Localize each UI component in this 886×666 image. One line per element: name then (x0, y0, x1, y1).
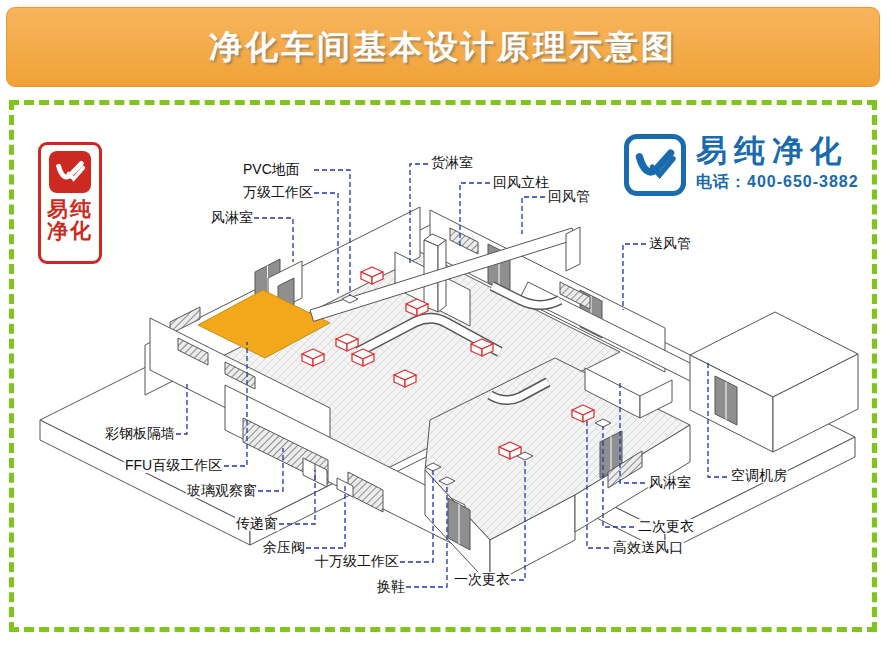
label-shoe-change: 换鞋 (376, 579, 406, 594)
label-return-air-column: 回风立柱 (492, 175, 550, 190)
page-title: 净化车间基本设计原理示意图 (209, 25, 677, 70)
label-first-changing: 一次更衣 (453, 572, 511, 587)
label-supply-air-duct: 送风管 (648, 236, 692, 251)
company-logo-block: 易纯净化 电话：400-650-3882 (624, 134, 859, 196)
label-air-shower-left: 风淋室 (210, 210, 254, 225)
label-ffu-class100-area: FFU百级工作区 (124, 458, 223, 473)
w-mark-icon (53, 155, 87, 189)
label-second-changing: 二次更衣 (637, 519, 695, 534)
title-banner: 净化车间基本设计原理示意图 (6, 7, 880, 87)
label-class100k-area: 十万级工作区 (314, 554, 400, 569)
seal-text-line1: 易纯 (47, 198, 93, 220)
red-seal-stamp: 易纯 净化 (38, 142, 102, 264)
company-name: 易纯净化 (696, 134, 859, 168)
label-hvac-room: 空调机房 (730, 468, 788, 483)
seal-logo-icon (49, 151, 91, 193)
company-logo-icon (624, 134, 686, 196)
label-steel-panel-wall: 彩钢板隔墙 (104, 426, 176, 441)
label-air-shower-right: 风淋室 (648, 475, 692, 490)
label-pressure-relief-valve: 余压阀 (262, 540, 306, 555)
company-phone: 电话：400-650-3882 (696, 172, 859, 193)
seal-text-line2: 净化 (47, 220, 93, 242)
label-transfer-window: 传递窗 (235, 516, 279, 531)
label-glass-window: 玻璃观察窗 (186, 483, 258, 498)
label-hepa-outlet: 高效送风口 (612, 540, 684, 555)
label-cargo-shower: 货淋室 (430, 155, 474, 170)
label-pvc-floor: PVC地面 (242, 162, 301, 177)
label-class10k-area: 万级工作区 (242, 185, 314, 200)
label-return-air-duct: 回风管 (547, 189, 591, 204)
w-mark-icon (633, 143, 677, 187)
